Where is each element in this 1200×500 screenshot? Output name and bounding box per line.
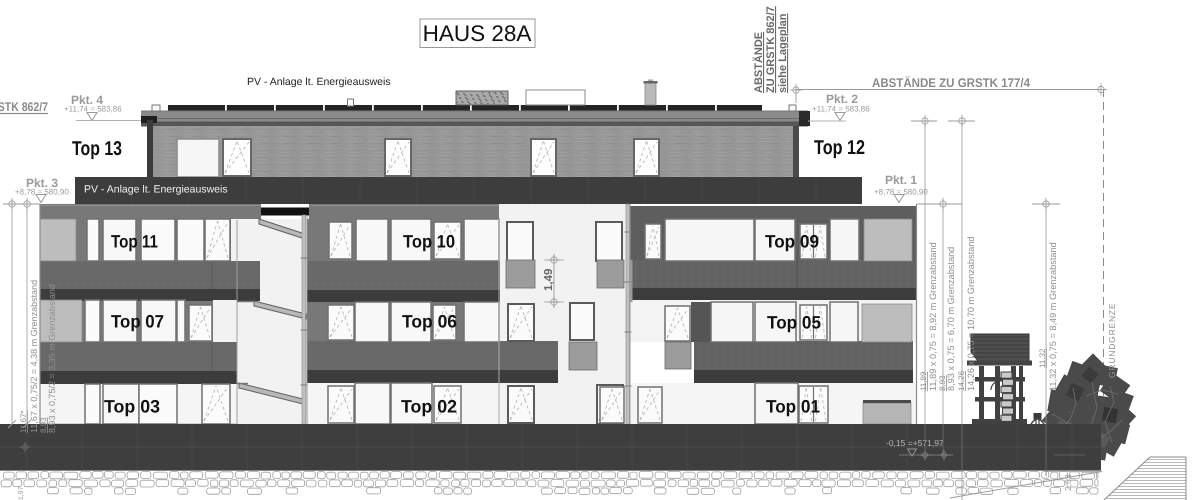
svg-text:Top 01: Top 01 (766, 397, 820, 417)
svg-text:Top 06: Top 06 (402, 312, 457, 332)
svg-text:HAUS 28A: HAUS 28A (423, 21, 532, 46)
svg-text:11,67*: 11,67* (19, 410, 28, 433)
svg-text:Top 11: Top 11 (111, 232, 158, 252)
svg-text:Top 10: Top 10 (403, 232, 455, 252)
svg-text:11,67 x 0,75/2 = 4,38 m Grenza: 11,67 x 0,75/2 = 4,38 m Grenzabstand (29, 280, 39, 433)
svg-text:Top 12: Top 12 (814, 137, 865, 159)
svg-text:ABSTÄNDE: ABSTÄNDE (752, 32, 765, 93)
svg-text:ABSTÄNDE ZU GRSTK 177/4: ABSTÄNDE ZU GRSTK 177/4 (872, 76, 1030, 90)
svg-text:Top 05: Top 05 (767, 313, 821, 333)
svg-text:14,26 x 0,75 = 10,70 m Grenzab: 14,26 x 0,75 = 10,70 m Grenzabstand (966, 236, 976, 391)
svg-text:Top 07: Top 07 (111, 312, 164, 332)
svg-text:Pkt. 1: Pkt. 1 (885, 173, 917, 187)
svg-text:11,89 x 0,75 = 8,92 m Grenzabs: 11,89 x 0,75 = 8,92 m Grenzabstand (928, 242, 938, 391)
svg-text:Top 09: Top 09 (765, 232, 819, 252)
svg-text:Top 13: Top 13 (72, 138, 122, 160)
svg-text:PV - Anlage lt. Energieausweis: PV - Anlage lt. Energieausweis (84, 184, 228, 196)
svg-text:-0,15 =+571,97: -0,15 =+571,97 (886, 438, 944, 448)
svg-text:14,26: 14,26 (957, 370, 966, 391)
svg-text:Top 02: Top 02 (401, 397, 457, 417)
svg-text:GRSTK 862/7: GRSTK 862/7 (0, 100, 48, 114)
svg-text:11,32: 11,32 (1038, 348, 1047, 368)
svg-text:8,93 x 0,75 = 6,70 m Grenzabst: 8,93 x 0,75 = 6,70 m Grenzabstand (946, 247, 956, 391)
svg-text:1,49: 1,49 (543, 269, 555, 291)
svg-text:11,89: 11,89 (919, 371, 928, 391)
svg-text:11,32 x 0,75 = 8,49 m Grenzabs: 11,32 x 0,75 = 8,49 m Grenzabstand (1048, 242, 1058, 391)
svg-text:Top 03: Top 03 (104, 397, 160, 417)
svg-text:8,93 x 0,75/2 = 3,35 m Grenzab: 8,93 x 0,75/2 = 3,35 m Grenzabstand (47, 284, 57, 433)
svg-text:ZU GRSTK 862/7: ZU GRSTK 862/7 (765, 6, 777, 93)
svg-text:2,03: 2,03 (1063, 474, 1073, 491)
svg-text:PV - Anlage lt. Energieausweis: PV - Anlage lt. Energieausweis (247, 76, 391, 88)
svg-text:-0,15 =+571,97: -0,15 =+571,97 (18, 486, 25, 500)
svg-text:GRUNDGRENZE: GRUNDGRENZE (1107, 303, 1117, 378)
svg-text:siehe Lageplan: siehe Lageplan (777, 13, 789, 93)
